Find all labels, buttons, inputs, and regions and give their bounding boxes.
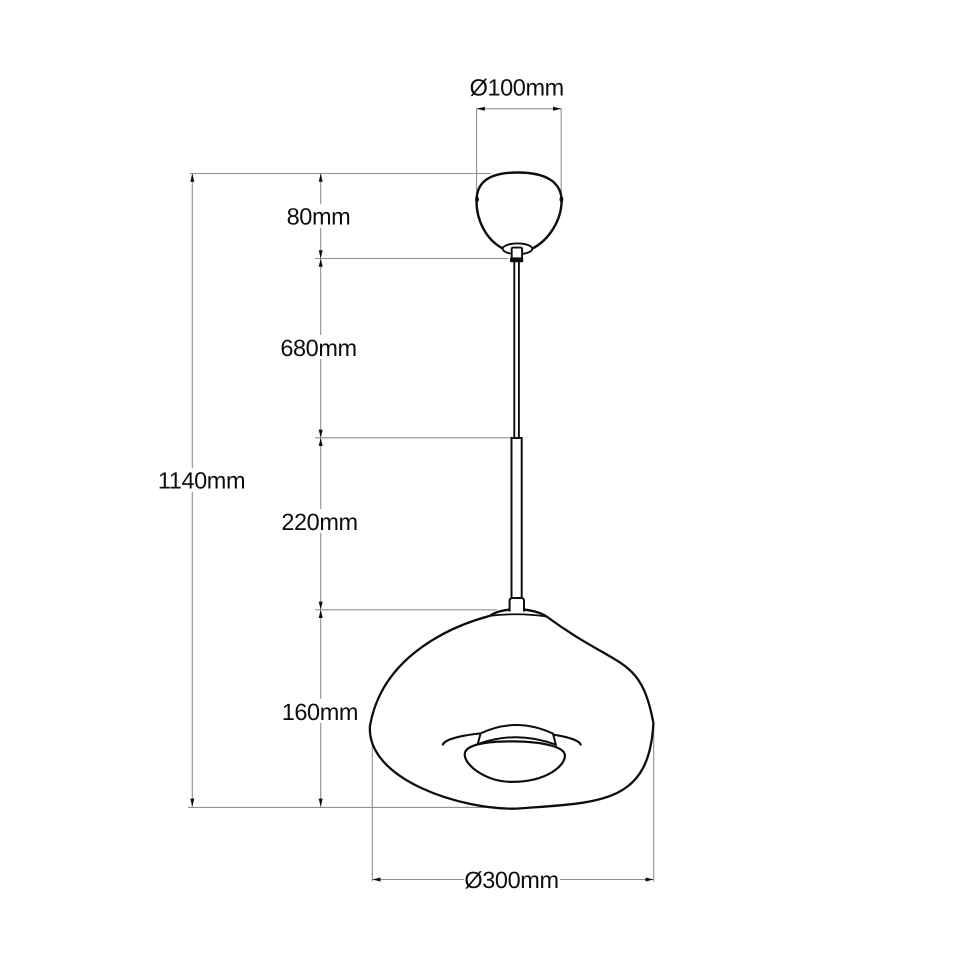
svg-text:1140mm: 1140mm [158,468,245,494]
svg-text:680mm: 680mm [280,335,356,361]
svg-text:80mm: 80mm [287,204,351,230]
svg-text:160mm: 160mm [282,699,358,725]
svg-text:Ø300mm: Ø300mm [464,867,558,893]
svg-text:220mm: 220mm [281,509,357,535]
svg-text:Ø100mm: Ø100mm [470,75,564,101]
